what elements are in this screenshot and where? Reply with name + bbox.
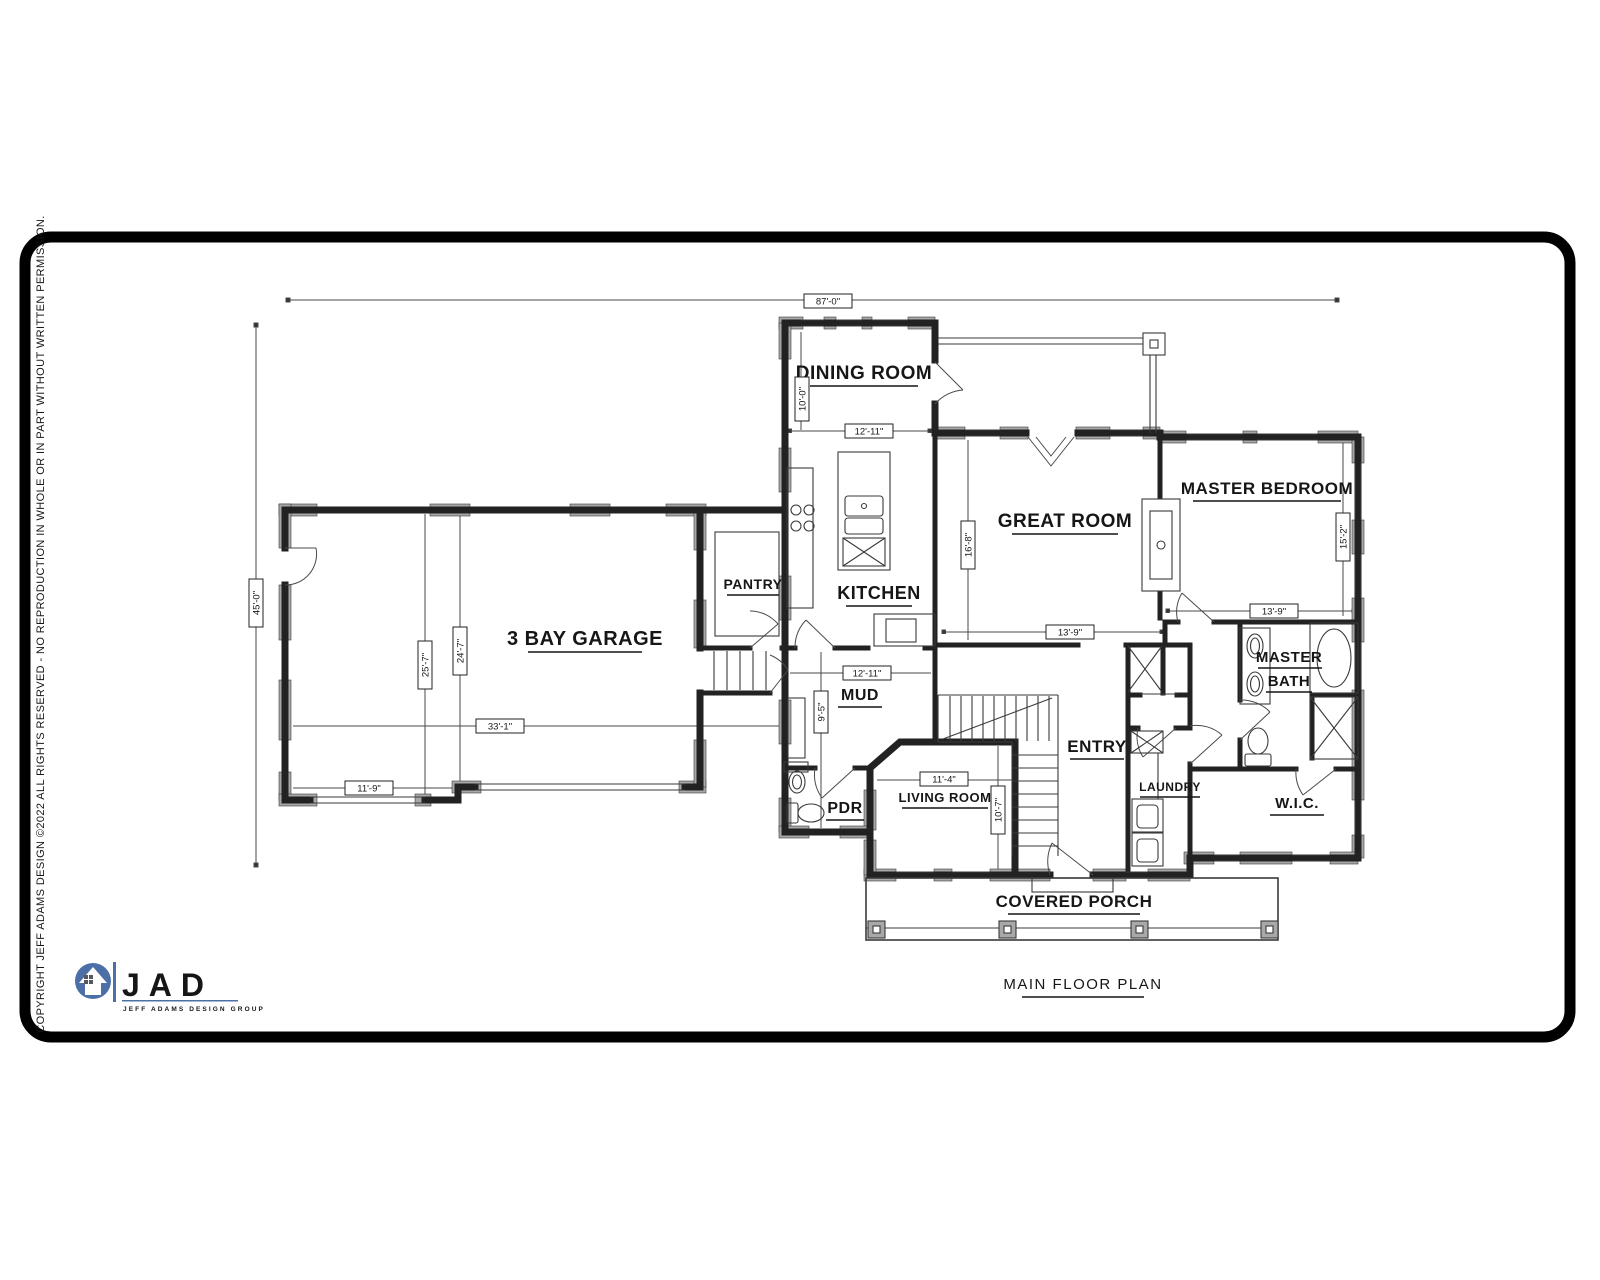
dim-living-depth: 10'-7": [991, 786, 1005, 834]
svg-text:10'-7": 10'-7": [994, 798, 1005, 822]
room-label-kitchen: KITCHEN: [837, 583, 921, 603]
room-label-wic: W.I.C.: [1275, 795, 1319, 812]
dim-great-room-width: 13'-9": [1046, 625, 1094, 639]
dim-garage-width: 33'-1": [476, 719, 524, 733]
laundry-fixtures: [1131, 731, 1163, 866]
svg-text:16'-8": 16'-8": [964, 533, 975, 557]
pdr-toilet: [798, 804, 824, 822]
dim-garage-bay: 11'-9": [345, 781, 393, 795]
logo-initials: JAD: [122, 967, 213, 1003]
logo-tagline: JEFF ADAMS DESIGN GROUP: [123, 1006, 265, 1013]
svg-text:9'-5": 9'-5": [817, 703, 828, 722]
plan-title: MAIN FLOOR PLAN: [1003, 976, 1162, 993]
room-label-dining: DINING ROOM: [796, 363, 932, 384]
pdr-sink: [789, 771, 805, 793]
svg-text:12'-11": 12'-11": [853, 669, 882, 680]
dim-garage-depth-2: 24'-7": [453, 627, 467, 675]
rear-deck: [938, 333, 1165, 433]
room-label-pdr: PDR: [827, 800, 862, 817]
cooktop-burner: [791, 505, 801, 515]
fireplace: [1142, 499, 1180, 591]
svg-text:24'-7": 24'-7": [456, 639, 467, 663]
corridor-steps: [714, 651, 766, 690]
svg-text:87'-0": 87'-0": [816, 297, 840, 308]
kitchen-fixtures: [787, 452, 935, 646]
room-label-great-room: GREAT ROOM: [998, 511, 1132, 532]
copyright-text: COPYRIGHT JEFF ADAMS DESIGN ©2022 ALL RI…: [35, 215, 47, 1032]
dim-garage-depth-1: 25'-7": [418, 641, 432, 689]
logo-divider: [113, 962, 116, 1002]
svg-text:11'-4": 11'-4": [932, 775, 956, 786]
svg-text:10'-0": 10'-0": [798, 387, 809, 411]
room-label-master-bath-1: MASTER: [1256, 649, 1322, 666]
bath-toilet: [1248, 728, 1268, 754]
logo-rule: [122, 1000, 238, 1002]
dim-mud-width: 12'-11": [843, 666, 891, 680]
room-label-laundry: LAUNDRY: [1139, 780, 1201, 794]
room-label-covered-porch: COVERED PORCH: [996, 892, 1153, 911]
dim-dining-depth: 10'-0": [795, 377, 809, 421]
vanity: [1240, 628, 1270, 704]
plan-title-group: MAIN FLOOR PLAN: [1003, 976, 1162, 997]
kitchen-sink: [845, 496, 883, 516]
room-label-garage: 3 BAY GARAGE: [507, 628, 663, 650]
room-labels: DINING ROOM KITCHEN PANTRY 3 BAY GARAGE …: [507, 363, 1353, 914]
svg-text:15'-2": 15'-2": [1339, 525, 1350, 549]
svg-text:25'-7": 25'-7": [421, 653, 432, 677]
room-label-entry: ENTRY: [1067, 737, 1127, 756]
floor-plan-sheet: COPYRIGHT JEFF ADAMS DESIGN ©2022 ALL RI…: [0, 0, 1600, 1280]
room-label-master-bedroom: MASTER BEDROOM: [1181, 479, 1353, 498]
dim-mud-depth: 9'-5": [814, 691, 828, 733]
dim-dining-width: 12'-11": [845, 424, 893, 438]
porch-posts: [868, 921, 1278, 938]
room-label-mud: MUD: [841, 687, 879, 704]
svg-text:13'-9": 13'-9": [1058, 628, 1082, 639]
room-label-living-room: LIVING ROOM: [899, 790, 992, 805]
dim-master-width: 13'-9": [1250, 604, 1298, 618]
svg-text:12'-11": 12'-11": [855, 427, 884, 438]
dim-overall-width: 87'-0": [804, 294, 852, 308]
dim-master-depth: 15'-2": [1336, 513, 1350, 561]
floor-plan-svg: COPYRIGHT JEFF ADAMS DESIGN ©2022 ALL RI…: [0, 0, 1600, 1280]
room-label-master-bath-2: BATH: [1268, 673, 1311, 690]
svg-text:11'-9": 11'-9": [357, 784, 381, 795]
room-label-pantry: PANTRY: [724, 576, 783, 592]
dim-great-room-depth: 16'-8": [961, 521, 975, 569]
sheet-border: [25, 237, 1570, 1037]
dim-living-width: 11'-4": [920, 772, 968, 786]
svg-text:33'-1": 33'-1": [488, 722, 512, 733]
entry-closet: [1128, 646, 1177, 694]
jad-logo: JAD JEFF ADAMS DESIGN GROUP: [75, 962, 265, 1013]
powder-room-fixtures: [787, 771, 824, 823]
dim-overall-depth: 45'-0": [249, 579, 263, 627]
svg-text:45'-0": 45'-0": [252, 591, 263, 615]
svg-text:13'-9": 13'-9": [1262, 607, 1286, 618]
deck-post: [1143, 333, 1165, 355]
